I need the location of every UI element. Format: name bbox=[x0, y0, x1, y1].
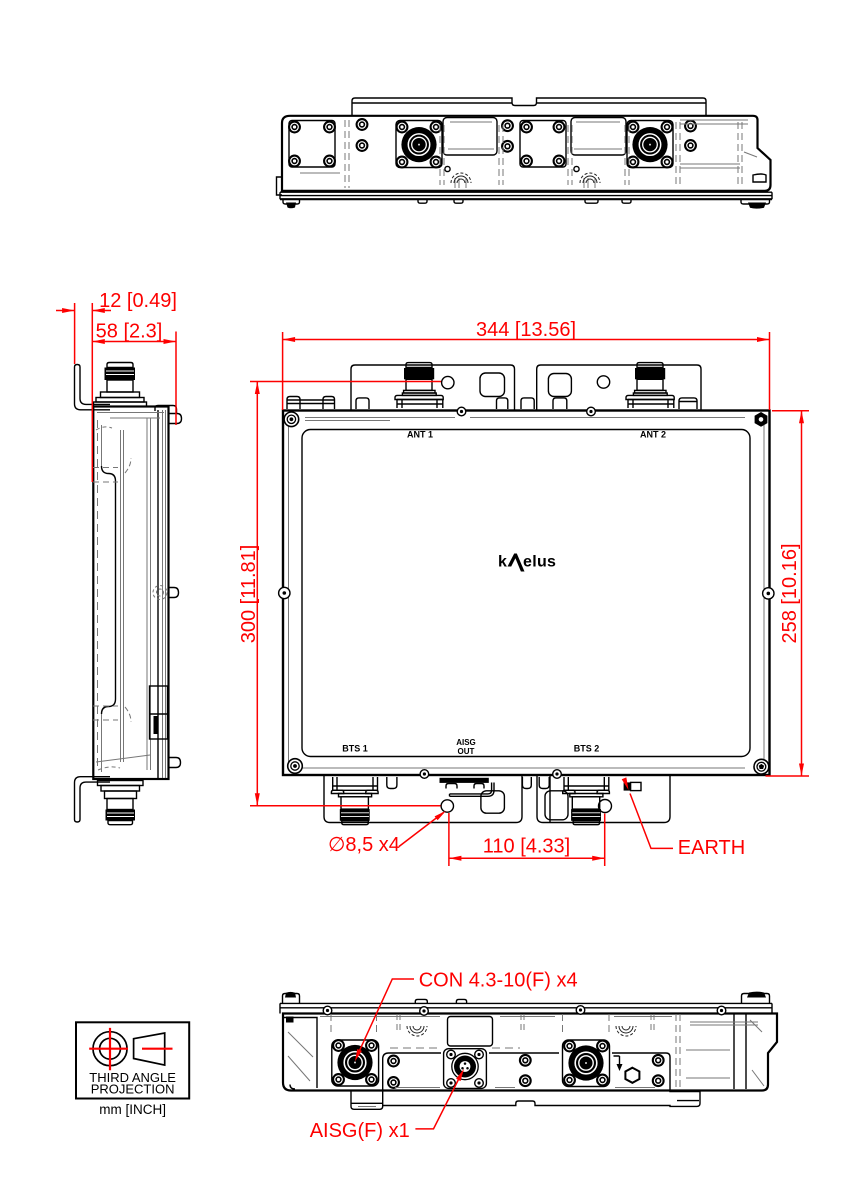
svg-text:300 [11.81]: 300 [11.81] bbox=[238, 545, 260, 644]
svg-text:∅8,5 x4: ∅8,5 x4 bbox=[328, 834, 400, 856]
svg-text:258 [10.16]: 258 [10.16] bbox=[779, 543, 801, 643]
svg-text:EARTH: EARTH bbox=[678, 837, 745, 859]
svg-text:58 [2.3]: 58 [2.3] bbox=[96, 321, 163, 343]
svg-text:ANT 2: ANT 2 bbox=[640, 430, 666, 440]
svg-text:PROJECTION: PROJECTION bbox=[91, 1082, 175, 1097]
svg-text:mm [INCH]: mm [INCH] bbox=[99, 1102, 166, 1117]
svg-text:110 [4.33]: 110 [4.33] bbox=[483, 836, 570, 858]
svg-text:CON 4.3-10(F) x4: CON 4.3-10(F) x4 bbox=[419, 970, 578, 992]
svg-text:BTS 1: BTS 1 bbox=[342, 744, 368, 754]
svg-text:12 [0.49]: 12 [0.49] bbox=[99, 290, 177, 312]
svg-text:ANT 1: ANT 1 bbox=[407, 430, 433, 440]
svg-text:k: k bbox=[498, 554, 507, 571]
svg-text:elus: elus bbox=[523, 554, 556, 571]
svg-text:BTS 2: BTS 2 bbox=[574, 744, 600, 754]
svg-text:AISG: AISG bbox=[456, 738, 476, 747]
svg-text:344 [13.56]: 344 [13.56] bbox=[476, 319, 576, 341]
svg-text:OUT: OUT bbox=[458, 747, 475, 756]
svg-text:AISG(F) x1: AISG(F) x1 bbox=[310, 1120, 410, 1142]
